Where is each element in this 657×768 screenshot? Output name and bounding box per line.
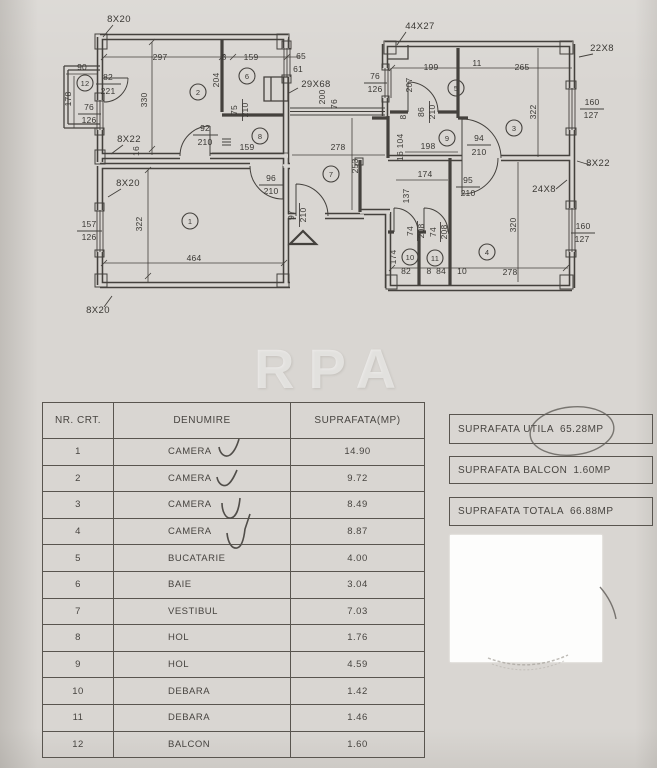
cell-nr: 1 bbox=[43, 439, 114, 466]
summary-value: 66.88MP bbox=[570, 506, 614, 517]
dim-label: 210 bbox=[427, 105, 437, 120]
dim-label: 208 bbox=[439, 225, 449, 240]
table-body: 1CAMERA14.902CAMERA9.723CAMERA8.494CAMER… bbox=[43, 439, 425, 758]
cell-suprafata: 1.76 bbox=[291, 625, 425, 652]
cell-nr: 10 bbox=[43, 678, 114, 705]
area-table: NR. CRT. DENUMIRE SUPRAFATA(MP) 1CAMERA1… bbox=[42, 402, 425, 758]
room-number: 2 bbox=[196, 88, 200, 97]
wall-size-label: 24X8 bbox=[532, 184, 556, 195]
dim-label: 322 bbox=[134, 217, 144, 232]
cell-suprafata: 4.00 bbox=[291, 545, 425, 572]
summary-value: 65.28MP bbox=[560, 424, 604, 435]
dim-label: 278 bbox=[503, 267, 518, 277]
dim-label: 174 bbox=[388, 250, 398, 265]
dim-label: 95 bbox=[463, 175, 473, 185]
col-header-denumire: DENUMIRE bbox=[114, 403, 291, 439]
table-row: 5BUCATARIE4.00 bbox=[43, 545, 425, 572]
cell-nr: 4 bbox=[43, 518, 114, 545]
dim-label: 210 bbox=[472, 147, 487, 157]
dim-label: 16 bbox=[395, 151, 405, 161]
cell-denumire: CAMERA bbox=[114, 518, 291, 545]
table-row: 11DEBARA1.46 bbox=[43, 704, 425, 731]
pen-stroke bbox=[600, 587, 616, 619]
summary-box-suprafata-balcon: SUPRAFATA BALCON 1.60MP bbox=[449, 456, 653, 484]
dim-label: 137 bbox=[401, 189, 411, 204]
dim-label: 97 bbox=[286, 210, 296, 220]
dim-label: 198 bbox=[421, 141, 436, 151]
room-number: 8 bbox=[258, 132, 262, 141]
dim-label: 76 bbox=[329, 99, 339, 109]
dim-label: 174 bbox=[418, 169, 433, 179]
table-row: 1CAMERA14.90 bbox=[43, 439, 425, 466]
cell-nr: 3 bbox=[43, 492, 114, 519]
table-row: 10DEBARA1.42 bbox=[43, 678, 425, 705]
cell-nr: 2 bbox=[43, 465, 114, 492]
watermark: RPA bbox=[254, 336, 410, 401]
entrance-arrow bbox=[290, 231, 316, 244]
summary-label: SUPRAFATA BALCON bbox=[458, 465, 567, 476]
cell-nr: 9 bbox=[43, 651, 114, 678]
room-number: 1 bbox=[188, 217, 192, 226]
cell-suprafata: 3.04 bbox=[291, 571, 425, 598]
summary-label: SUPRAFATA TOTALA bbox=[458, 506, 564, 517]
room-number: 12 bbox=[81, 79, 90, 88]
cell-denumire: CAMERA bbox=[114, 465, 291, 492]
dim-label: 8 bbox=[222, 52, 227, 62]
dim-label: 320 bbox=[508, 218, 518, 233]
cell-nr: 11 bbox=[43, 704, 114, 731]
summary-label: SUPRAFATA UTILA bbox=[458, 424, 554, 435]
stamp-arc bbox=[492, 661, 564, 670]
dim-label: 210 bbox=[198, 137, 213, 147]
dim-label: 253 bbox=[350, 159, 360, 174]
dim-label: 90 bbox=[77, 62, 87, 72]
dim-label: 76 bbox=[84, 102, 94, 112]
room-number: 4 bbox=[485, 248, 489, 257]
room-number: 5 bbox=[454, 84, 458, 93]
dim-label: 8 bbox=[398, 114, 408, 119]
dim-label: 207 bbox=[404, 78, 414, 93]
cell-suprafata: 8.49 bbox=[291, 492, 425, 519]
dim-label: 126 bbox=[368, 84, 383, 94]
cell-denumire: BAIE bbox=[114, 571, 291, 598]
cell-denumire: BALCON bbox=[114, 731, 291, 758]
table-row: 2CAMERA9.72 bbox=[43, 465, 425, 492]
dim-label: 92 bbox=[200, 123, 210, 133]
dim-label: 297 bbox=[153, 52, 168, 62]
dim-label: 16 bbox=[131, 146, 141, 156]
dim-label: 126 bbox=[82, 115, 97, 125]
dim-label: 208 bbox=[416, 224, 426, 239]
wall-size-label: 29X68 bbox=[301, 79, 330, 90]
summary-box-suprafata-totala: SUPRAFATA TOTALA 66.88MP bbox=[449, 497, 653, 526]
cell-denumire: HOL bbox=[114, 651, 291, 678]
cell-denumire: DEBARA bbox=[114, 704, 291, 731]
table-row: 7VESTIBUL7.03 bbox=[43, 598, 425, 625]
dim-label: 8 bbox=[427, 266, 432, 276]
cell-suprafata: 7.03 bbox=[291, 598, 425, 625]
interior-walls bbox=[222, 40, 468, 285]
cell-nr: 8 bbox=[43, 625, 114, 652]
exterior-wall-core bbox=[100, 37, 572, 288]
dim-label: 82 bbox=[103, 72, 113, 82]
room-number: 10 bbox=[406, 253, 415, 262]
dim-label: 322 bbox=[528, 105, 538, 120]
summary-box-suprafata-utila: SUPRAFATA UTILA 65.28MP bbox=[449, 414, 653, 444]
dim-label: 159 bbox=[240, 142, 255, 152]
dim-label: 464 bbox=[187, 253, 202, 263]
dim-label: 11 bbox=[472, 58, 481, 68]
dim-label: 104 bbox=[395, 134, 405, 149]
dim-label: 265 bbox=[515, 62, 530, 72]
cell-denumire: CAMERA bbox=[114, 439, 291, 466]
cell-denumire: BUCATARIE bbox=[114, 545, 291, 572]
cell-denumire: DEBARA bbox=[114, 678, 291, 705]
wall-size-label: 22X8 bbox=[590, 43, 614, 54]
room-number: 7 bbox=[329, 170, 333, 179]
cell-nr: 7 bbox=[43, 598, 114, 625]
wall-size-label: 44X27 bbox=[405, 21, 434, 32]
dim-label: 210 bbox=[264, 186, 279, 196]
cell-suprafata: 1.60 bbox=[291, 731, 425, 758]
dim-label: 127 bbox=[575, 234, 590, 244]
col-header-nr-crt: NR. CRT. bbox=[43, 403, 114, 439]
dim-label: 74 bbox=[428, 227, 438, 237]
cell-suprafata: 9.72 bbox=[291, 465, 425, 492]
dim-label: 127 bbox=[584, 110, 599, 120]
wall-size-label: 8X20 bbox=[107, 14, 131, 25]
dim-label: 96 bbox=[266, 173, 276, 183]
table-row: 6BAIE3.04 bbox=[43, 571, 425, 598]
dim-label: 159 bbox=[244, 52, 259, 62]
dim-label: 86 bbox=[416, 107, 426, 117]
table-row: 3CAMERA8.49 bbox=[43, 492, 425, 519]
cell-suprafata: 8.87 bbox=[291, 518, 425, 545]
summary-value: 1.60MP bbox=[573, 465, 610, 476]
dim-label: 178 bbox=[63, 92, 73, 107]
dim-label: 210 bbox=[461, 188, 476, 198]
dim-label: 210 bbox=[298, 208, 308, 223]
dim-label: 278 bbox=[331, 142, 346, 152]
cell-suprafata: 4.59 bbox=[291, 651, 425, 678]
table-row: 12BALCON1.60 bbox=[43, 731, 425, 758]
wall-size-label: 8X22 bbox=[586, 158, 610, 169]
room-number: 6 bbox=[245, 72, 249, 81]
table-row: 4CAMERA8.87 bbox=[43, 518, 425, 545]
dim-label: 160 bbox=[576, 221, 591, 231]
exterior-walls bbox=[100, 37, 572, 288]
dim-label: 330 bbox=[139, 93, 149, 108]
dim-label: 10 bbox=[457, 266, 467, 276]
dim-label: 157 bbox=[82, 219, 97, 229]
cell-nr: 12 bbox=[43, 731, 114, 758]
cell-suprafata: 1.42 bbox=[291, 678, 425, 705]
cell-denumire: CAMERA bbox=[114, 492, 291, 519]
wall-size-label: 8X20 bbox=[116, 178, 140, 189]
dimension-lines bbox=[66, 42, 572, 282]
dim-label: 221 bbox=[101, 86, 116, 96]
wall-size-label: 8X20 bbox=[86, 305, 110, 316]
cell-nr: 6 bbox=[43, 571, 114, 598]
dim-label: 75 bbox=[229, 105, 239, 115]
dim-label: 84 bbox=[436, 266, 446, 276]
table-header-row: NR. CRT. DENUMIRE SUPRAFATA(MP) bbox=[43, 403, 425, 439]
cell-suprafata: 1.46 bbox=[291, 704, 425, 731]
dim-label: 74 bbox=[405, 226, 415, 236]
wall-piers bbox=[95, 34, 576, 289]
col-header-suprafata: SUPRAFATA(MP) bbox=[291, 403, 425, 439]
redaction-box bbox=[450, 535, 602, 662]
dim-label: 82 bbox=[401, 266, 411, 276]
dim-label: 76 bbox=[370, 71, 380, 81]
dim-label: 126 bbox=[82, 232, 97, 242]
room-number: 9 bbox=[445, 134, 449, 143]
dim-label: 61 bbox=[293, 64, 303, 74]
room-number: 3 bbox=[512, 124, 516, 133]
dim-label: 160 bbox=[585, 97, 600, 107]
room-number: 11 bbox=[431, 254, 439, 263]
wall-size-label: 8X22 bbox=[117, 134, 141, 145]
table-row: 9HOL4.59 bbox=[43, 651, 425, 678]
dim-label: 199 bbox=[424, 62, 439, 72]
cell-denumire: HOL bbox=[114, 625, 291, 652]
dim-label: 200 bbox=[317, 90, 327, 105]
scanned-document-page: RPA bbox=[0, 0, 657, 768]
cell-denumire: VESTIBUL bbox=[114, 598, 291, 625]
cell-nr: 5 bbox=[43, 545, 114, 572]
dim-label: 65 bbox=[296, 51, 306, 61]
dim-label: 94 bbox=[474, 133, 484, 143]
cell-suprafata: 14.90 bbox=[291, 439, 425, 466]
table-row: 8HOL1.76 bbox=[43, 625, 425, 652]
dim-label: 210 bbox=[240, 103, 250, 118]
dim-label: 204 bbox=[211, 73, 221, 88]
